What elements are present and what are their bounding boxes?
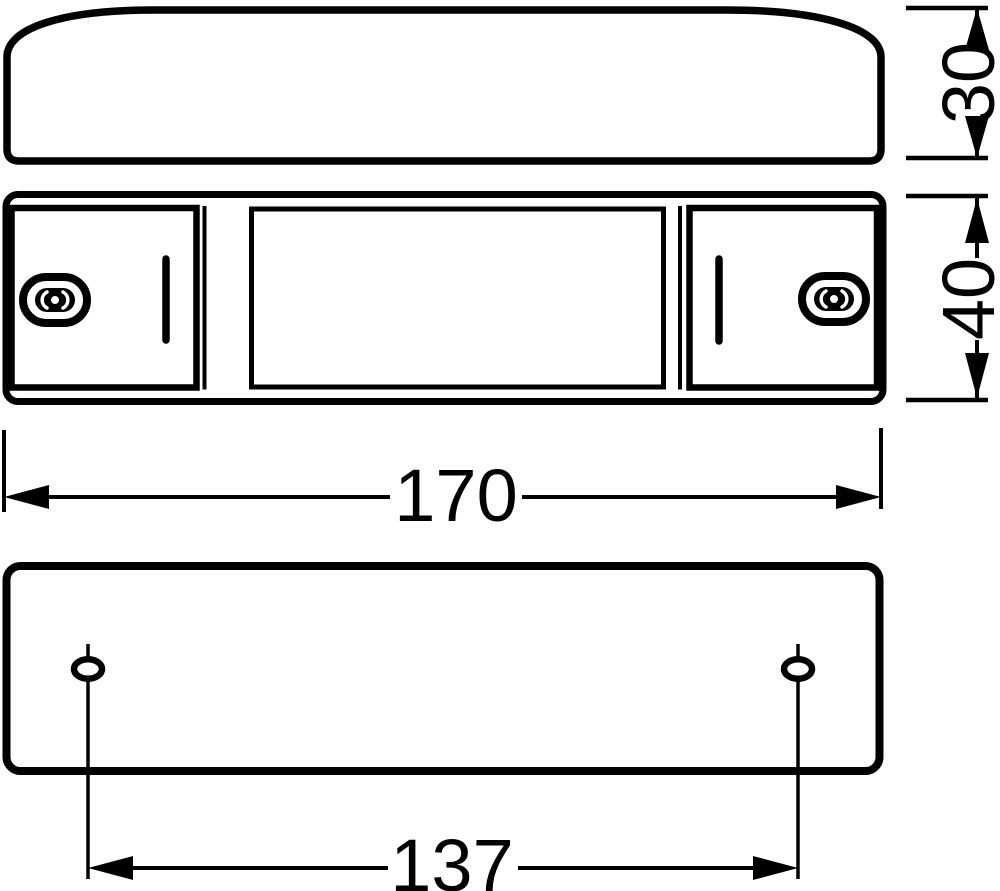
mounting-hole-left	[74, 659, 102, 679]
dimension-body-height: 40	[906, 196, 1000, 400]
arrowhead-left-icon	[4, 485, 49, 509]
side-profile-view	[7, 10, 881, 161]
label-area	[252, 209, 664, 387]
front-view	[6, 195, 883, 402]
side-profile-outline	[7, 10, 881, 161]
dimension-profile-height: 30	[906, 8, 1000, 158]
dimension-drawing-page: 30 40 170 137	[0, 0, 1000, 891]
arrowhead-up-icon	[965, 198, 989, 243]
dimension-value-137: 137	[390, 824, 513, 891]
arrowhead-right-icon	[836, 485, 881, 509]
arrowhead-down-icon	[965, 353, 989, 398]
dimension-value-40: 40	[927, 258, 1000, 340]
technical-dimension-drawing: 30 40 170 137	[0, 0, 1000, 891]
mounting-hole-right	[784, 659, 812, 679]
dimension-value-30: 30	[927, 42, 1000, 124]
cable-gland-left-icon	[23, 277, 87, 323]
arrowhead-left-icon	[88, 856, 133, 880]
bottom-view-outline	[7, 566, 880, 771]
dimension-body-width: 170	[4, 428, 881, 537]
dimension-value-170: 170	[394, 454, 517, 537]
cable-gland-right-icon	[802, 276, 866, 322]
dimension-hole-spacing: 137	[88, 824, 798, 891]
arrowhead-right-icon	[753, 856, 798, 880]
